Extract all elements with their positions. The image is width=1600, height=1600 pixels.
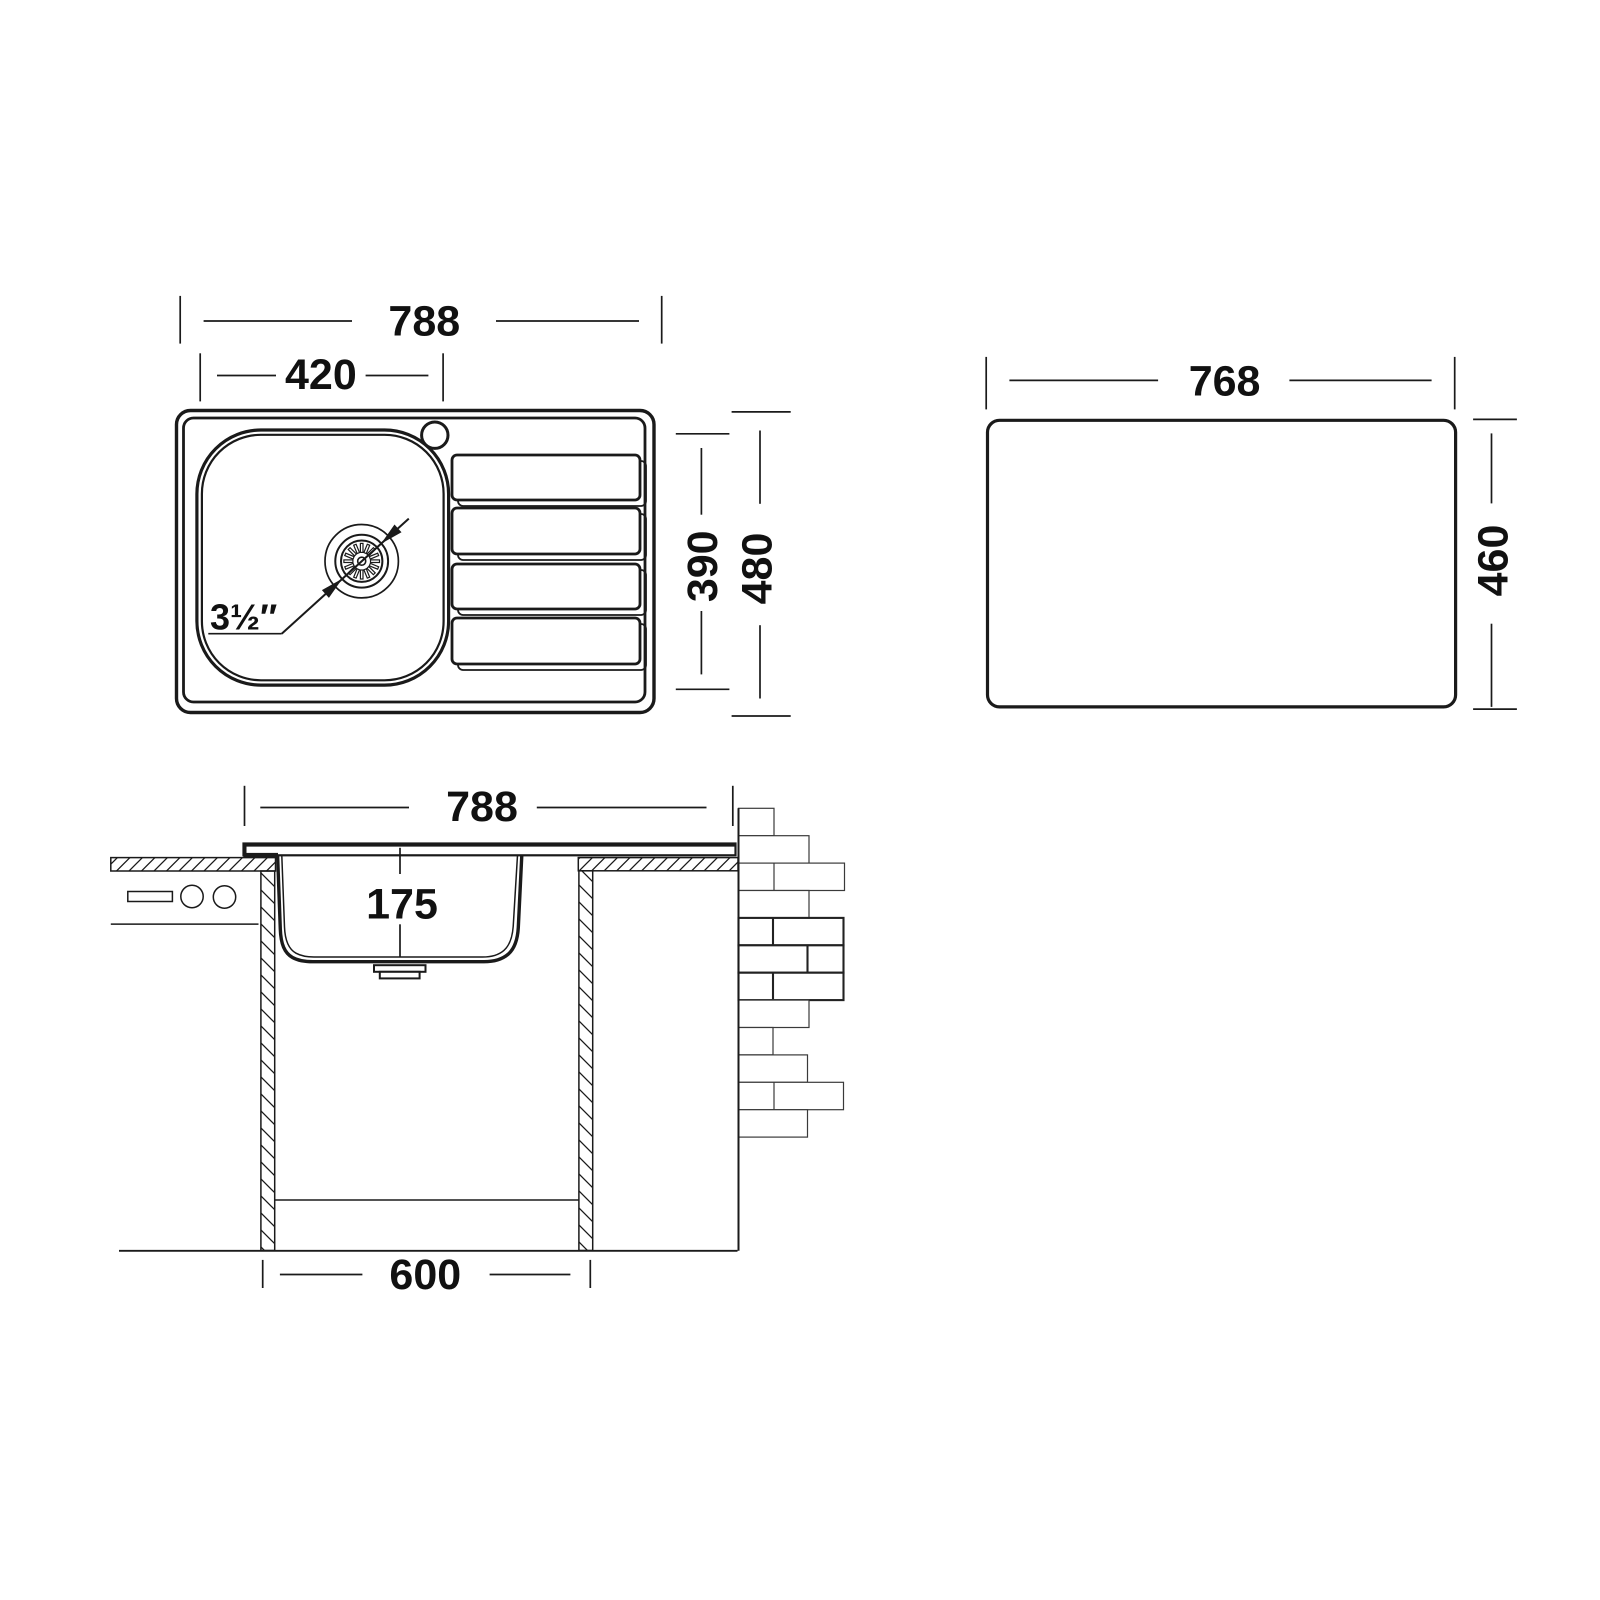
svg-text:600: 600 [389, 1251, 461, 1299]
svg-text:175: 175 [366, 881, 438, 929]
svg-text:460: 460 [1469, 525, 1517, 597]
svg-text:768: 768 [1189, 358, 1261, 406]
svg-text:390: 390 [679, 530, 727, 602]
svg-text:788: 788 [388, 298, 460, 346]
svg-text:788: 788 [446, 783, 518, 831]
svg-text:480: 480 [734, 533, 782, 605]
svg-text:420: 420 [285, 351, 357, 399]
svg-text:3½″: 3½″ [210, 597, 277, 638]
